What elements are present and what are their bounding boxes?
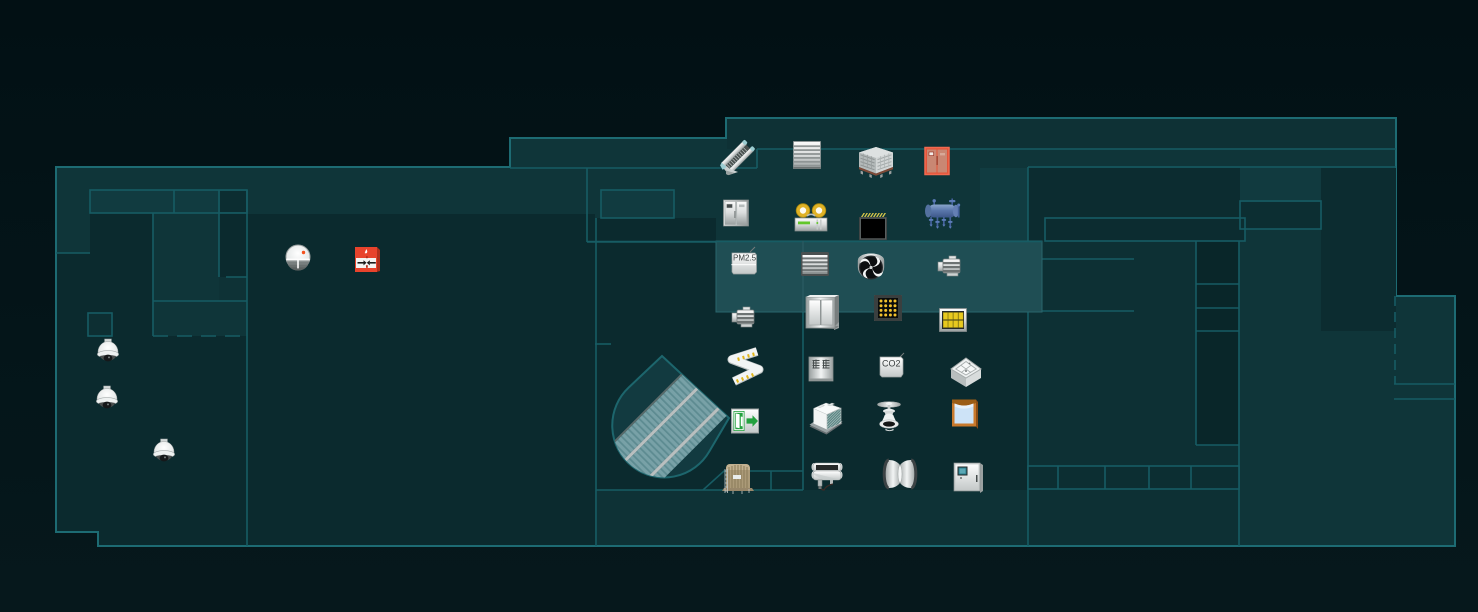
- svg-text:CO2: CO2: [882, 359, 901, 369]
- svg-text:PM2.5: PM2.5: [733, 254, 757, 263]
